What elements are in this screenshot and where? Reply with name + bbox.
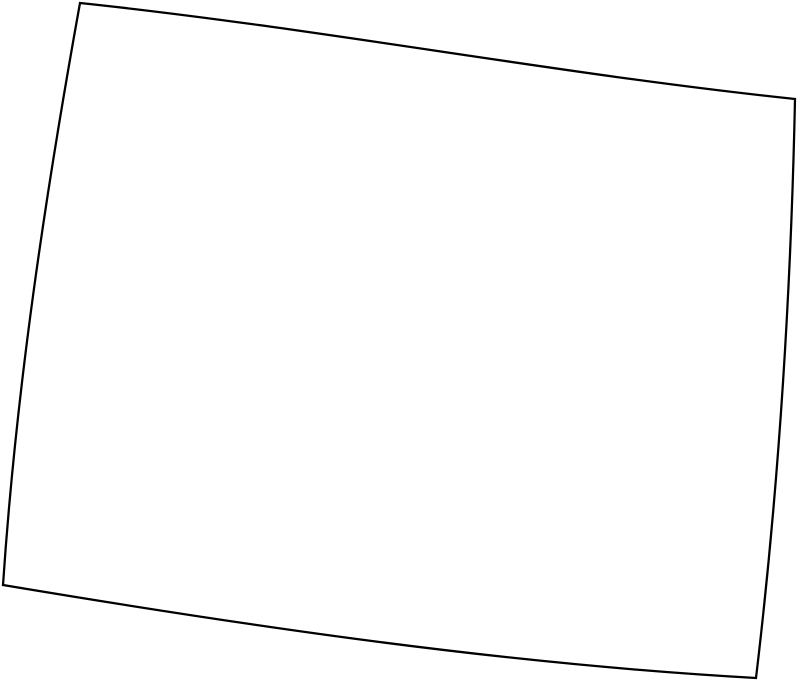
state-outline-map — [0, 0, 800, 683]
state-outline-shape — [3, 3, 795, 678]
map-canvas — [0, 0, 800, 683]
